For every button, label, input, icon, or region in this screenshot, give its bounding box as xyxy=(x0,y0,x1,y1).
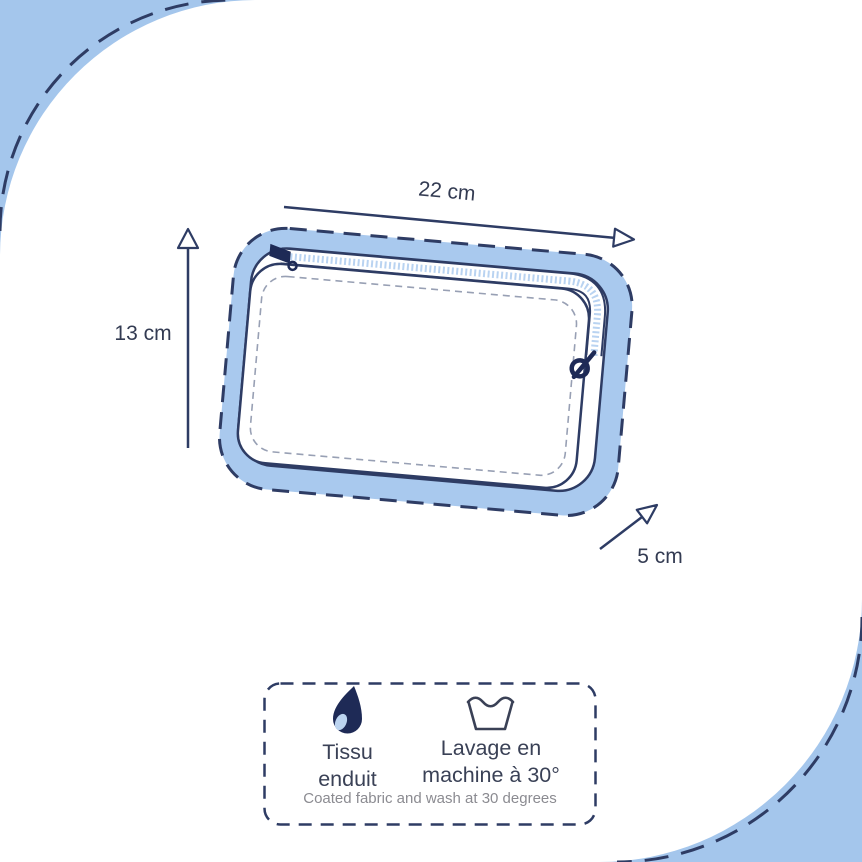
product-dimensions-card: 22 cm 13 cm 5 cm Tissu enduit xyxy=(0,0,862,862)
height-label: 13 cm xyxy=(114,322,171,345)
wash-care-label: Lavage en machine à 30° xyxy=(391,735,591,789)
water-drop-icon xyxy=(328,685,366,739)
wash-basin-icon xyxy=(466,692,515,732)
width-arrowhead-icon xyxy=(613,229,634,247)
pouch-illustration xyxy=(215,224,636,520)
height-dimension: 13 cm xyxy=(114,229,198,448)
depth-arrow-line xyxy=(600,517,642,549)
depth-arrowhead-icon xyxy=(637,505,657,523)
depth-label: 5 cm xyxy=(637,545,683,568)
pouch-front-panel xyxy=(235,261,591,490)
wash-care-line1: Lavage en xyxy=(391,735,591,762)
width-label: 22 cm xyxy=(417,177,476,205)
care-info-box: Tissu enduit Lavage en machine à 30° Coa… xyxy=(263,682,597,826)
depth-dimension: 5 cm xyxy=(600,505,683,568)
wash-care-line2: machine à 30° xyxy=(391,762,591,789)
care-footnote: Coated fabric and wash at 30 degrees xyxy=(263,790,597,807)
height-arrowhead-icon xyxy=(178,229,198,248)
